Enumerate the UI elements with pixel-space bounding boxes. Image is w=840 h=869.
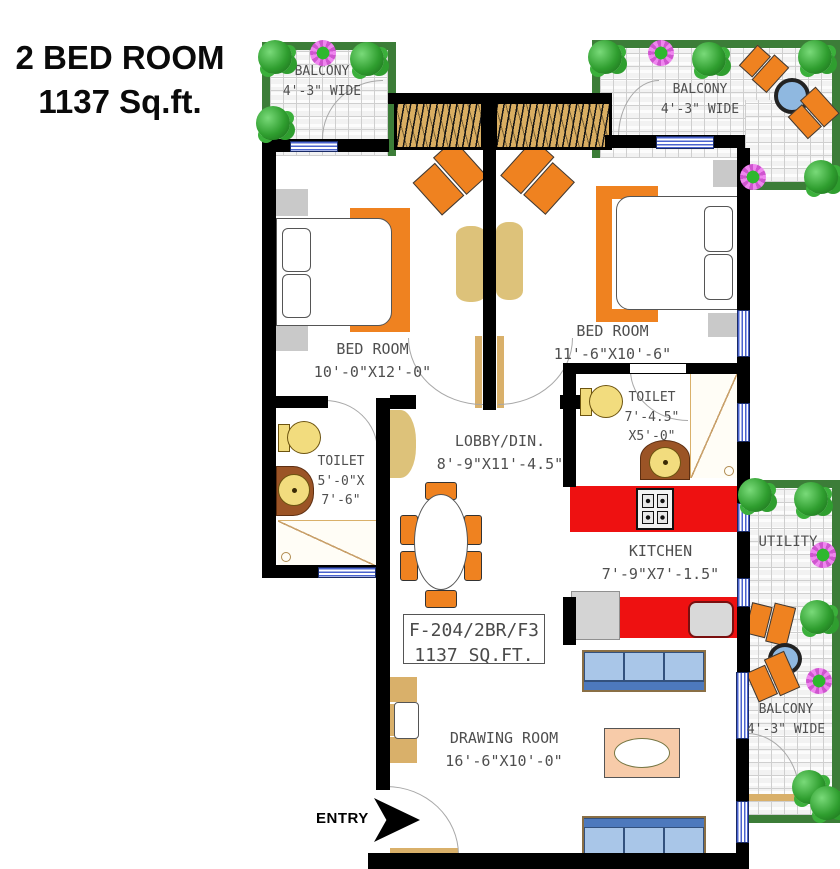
- fridge: [571, 591, 620, 640]
- flower-icon: [806, 668, 832, 694]
- toilet-right-label: TOILET 7'-4.5" X5'-0": [610, 388, 694, 447]
- burner: [642, 494, 654, 508]
- shower-drain: [281, 552, 291, 562]
- room-name: BED ROOM: [535, 320, 690, 343]
- room-name: KITCHEN: [588, 540, 733, 563]
- drawing-room-label: DRAWING ROOM 16'-6"X10'-0": [429, 727, 579, 772]
- wall: [560, 395, 580, 409]
- room-dim: 7'-9"X7'-1.5": [588, 563, 733, 586]
- room-name: TOILET: [610, 388, 694, 408]
- wardrobe-left: [394, 100, 484, 150]
- room-name: DRAWING ROOM: [429, 727, 579, 750]
- shower-tray: [690, 374, 737, 478]
- wall: [737, 605, 750, 672]
- window: [656, 136, 714, 149]
- room-dim: 11'-6"X10'-6": [535, 343, 690, 366]
- pillow: [282, 274, 311, 318]
- toilet-left-label: TOILET 5'-0"X 7'-6": [300, 452, 382, 511]
- plan-title-line1: 2 BED ROOM: [2, 36, 238, 80]
- entry-label: ENTRY: [316, 810, 369, 827]
- window: [737, 310, 750, 357]
- burner: [657, 511, 669, 525]
- dining-chair: [425, 590, 457, 608]
- pillow: [704, 254, 733, 300]
- window: [737, 403, 750, 442]
- dining-table: [414, 494, 468, 590]
- plan-title-line2: 1137 Sq.ft.: [2, 80, 238, 124]
- plant-icon: [800, 600, 834, 634]
- plant-icon: [804, 160, 838, 194]
- wall: [368, 853, 748, 869]
- unit-number: F-204/2BR/F3: [404, 618, 544, 643]
- side-table: [272, 189, 308, 216]
- plant-icon: [810, 786, 840, 820]
- tv-unit: [389, 737, 417, 763]
- plant-icon: [692, 42, 726, 76]
- wall: [563, 597, 576, 645]
- tv-unit: [389, 677, 417, 702]
- console-table: [390, 410, 416, 478]
- wardrobe-right: [494, 100, 612, 150]
- bedroom-right-label: BED ROOM 11'-6"X10'-6": [535, 320, 690, 365]
- wall: [390, 395, 416, 409]
- wall: [736, 737, 749, 801]
- flower-icon: [740, 164, 766, 190]
- floor-plan: 2 BED ROOM 1137 Sq.ft. BALCONY 4'-3" WID…: [0, 0, 840, 869]
- tv: [394, 702, 419, 739]
- plant-icon: [258, 40, 292, 74]
- dresser: [456, 226, 486, 302]
- room-dim: 4'-3" WIDE: [736, 720, 836, 740]
- plant-icon: [350, 42, 384, 76]
- sofa-bottom: [582, 816, 706, 858]
- flower-icon: [310, 40, 336, 66]
- lobby-label: LOBBY/DIN. 8'-9"X11'-4.5": [422, 430, 578, 475]
- window: [737, 578, 750, 607]
- shower-tray: [278, 520, 376, 566]
- side-table: [708, 313, 738, 337]
- room-dim: 4'-3" WIDE: [630, 100, 770, 120]
- balcony-top-right-label: BALCONY 4'-3" WIDE: [630, 80, 770, 119]
- kitchen-sink: [688, 601, 734, 638]
- flower-icon: [810, 542, 836, 568]
- wall: [388, 93, 612, 104]
- room-name: BALCONY: [630, 80, 770, 100]
- balcony-bottom-right-label: BALCONY 4'-3" WIDE: [736, 700, 836, 739]
- plant-icon: [588, 40, 622, 74]
- bedroom-left-label: BED ROOM 10'-0"X12'-0": [295, 338, 450, 383]
- door-opening: [630, 364, 686, 373]
- plant-icon: [798, 40, 832, 74]
- plant-icon: [738, 478, 772, 512]
- burner: [657, 494, 669, 508]
- room-dim: 7'-4.5": [610, 408, 694, 428]
- wall: [262, 137, 276, 578]
- room-dim: 7'-6": [300, 491, 382, 511]
- coffee-table-top: [614, 738, 670, 768]
- unit-label-box: F-204/2BR/F3 1137 SQ.FT.: [403, 614, 545, 664]
- room-dim: 16'-6"X10'-0": [429, 750, 579, 773]
- coffee-table: [604, 728, 680, 778]
- room-dim: 8'-9"X11'-4.5": [422, 453, 578, 476]
- room-name: TOILET: [300, 452, 382, 472]
- wall: [276, 396, 328, 408]
- plant-icon: [794, 482, 828, 516]
- room-dim: 5'-0"X: [300, 472, 382, 492]
- flower-icon: [648, 40, 674, 66]
- toilet-left-door-arc: [325, 400, 378, 451]
- room-name: BED ROOM: [295, 338, 450, 361]
- room-name: BALCONY: [736, 700, 836, 720]
- pillow: [704, 206, 733, 252]
- wall: [737, 530, 750, 578]
- washbasin: [649, 447, 681, 478]
- shower-drain: [724, 466, 734, 476]
- stove: [636, 488, 674, 530]
- plant-icon: [256, 106, 290, 140]
- plan-title: 2 BED ROOM 1137 Sq.ft.: [2, 36, 238, 123]
- pillow: [282, 228, 311, 272]
- room-name: LOBBY/DIN.: [422, 430, 578, 453]
- room-dim: X5'-0": [610, 427, 694, 447]
- window: [736, 801, 749, 843]
- dresser: [496, 222, 523, 300]
- window: [290, 141, 338, 152]
- wall: [483, 98, 496, 410]
- window: [318, 567, 376, 578]
- burner: [642, 511, 654, 525]
- toilet-bowl: [287, 421, 321, 454]
- room-dim: 4'-3" WIDE: [262, 82, 382, 102]
- kitchen-label: KITCHEN 7'-9"X7'-1.5": [588, 540, 733, 585]
- room-dim: 10'-0"X12'-0": [295, 361, 450, 384]
- unit-area: 1137 SQ.FT.: [404, 643, 544, 668]
- wall: [736, 841, 749, 869]
- sofa-top: [582, 650, 706, 692]
